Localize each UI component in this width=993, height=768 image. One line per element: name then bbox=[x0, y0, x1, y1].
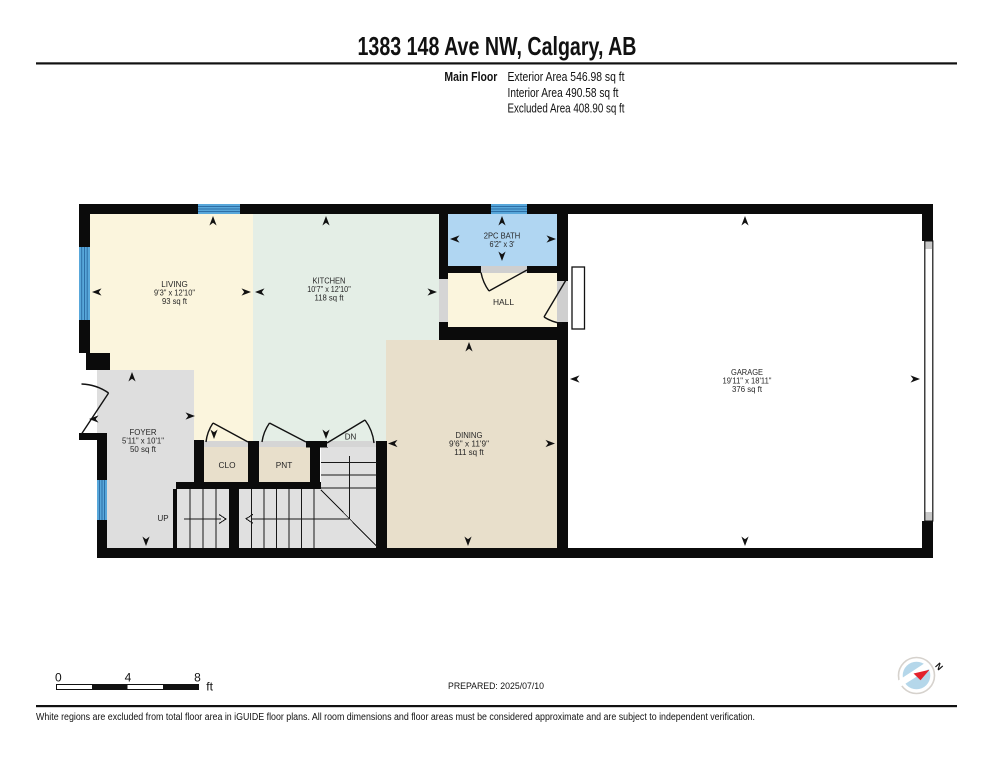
svg-text:8: 8 bbox=[194, 671, 201, 685]
svg-text:ft: ft bbox=[206, 679, 213, 693]
svg-text:White regions are excluded fro: White regions are excluded from total fl… bbox=[36, 712, 755, 723]
svg-text:Excluded Area 408.90 sq ft: Excluded Area 408.90 sq ft bbox=[508, 101, 625, 116]
svg-text:PREPARED: 2025/07/10: PREPARED: 2025/07/10 bbox=[448, 681, 544, 692]
svg-text:Main Floor: Main Floor bbox=[444, 69, 497, 84]
svg-text:118 sq ft: 118 sq ft bbox=[315, 294, 345, 303]
svg-text:UP: UP bbox=[157, 514, 168, 523]
svg-text:PNT: PNT bbox=[276, 461, 293, 470]
svg-text:CLO: CLO bbox=[219, 461, 236, 470]
svg-text:HALL: HALL bbox=[493, 298, 515, 307]
svg-text:Exterior Area 546.98 sq ft: Exterior Area 546.98 sq ft bbox=[508, 69, 625, 84]
svg-text:DN: DN bbox=[345, 433, 357, 442]
svg-text:4: 4 bbox=[125, 671, 132, 685]
svg-text:111 sq ft: 111 sq ft bbox=[454, 448, 484, 457]
svg-text:376 sq ft: 376 sq ft bbox=[732, 385, 763, 394]
svg-text:0: 0 bbox=[55, 671, 62, 685]
svg-text:1383 148 Ave NW, Calgary, AB: 1383 148 Ave NW, Calgary, AB bbox=[358, 31, 637, 61]
svg-text:6'2" x 3': 6'2" x 3' bbox=[490, 240, 515, 249]
svg-text:93 sq ft: 93 sq ft bbox=[162, 297, 188, 306]
svg-text:Interior Area 490.58 sq ft: Interior Area 490.58 sq ft bbox=[508, 85, 619, 100]
svg-text:50 sq ft: 50 sq ft bbox=[130, 445, 157, 454]
